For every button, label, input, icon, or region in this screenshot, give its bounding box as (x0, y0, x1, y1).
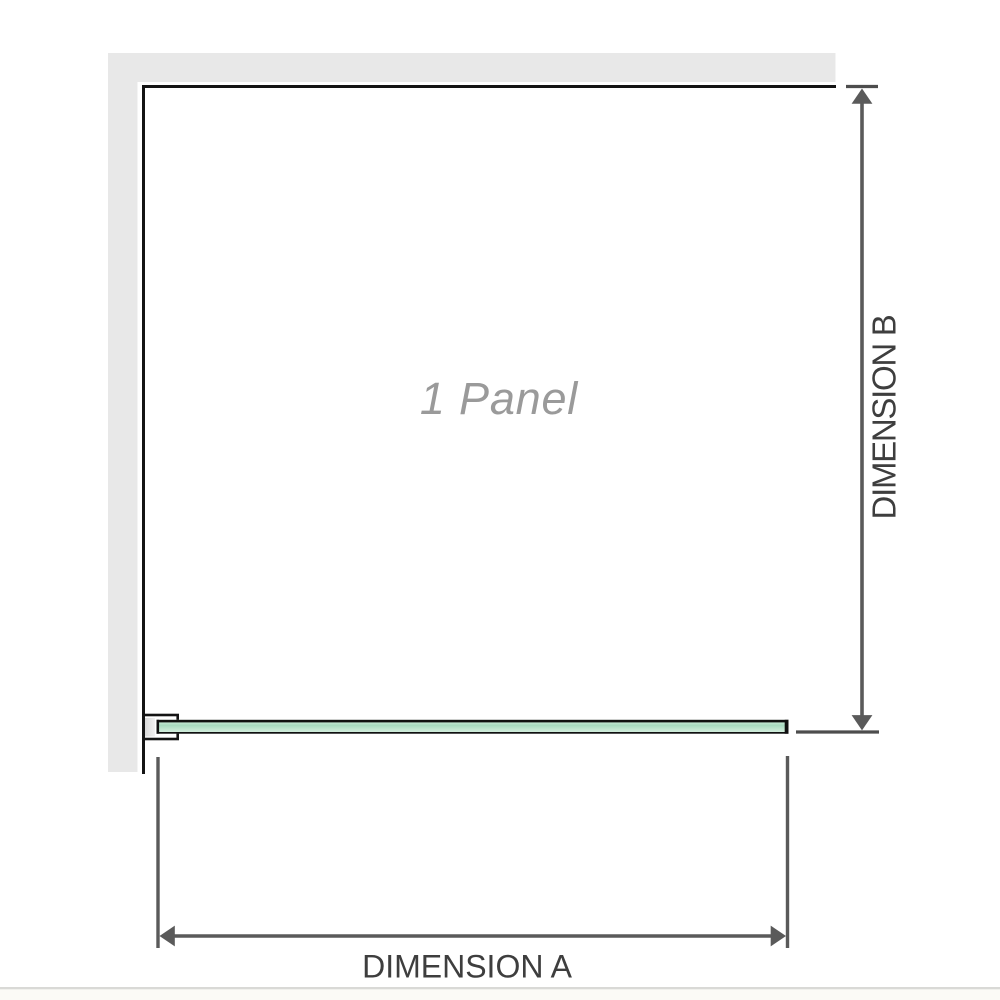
svg-text:DIMENSION A: DIMENSION A (362, 949, 572, 985)
svg-text:1 Panel: 1 Panel (420, 373, 579, 424)
svg-text:DIMENSION B: DIMENSION B (866, 315, 903, 519)
